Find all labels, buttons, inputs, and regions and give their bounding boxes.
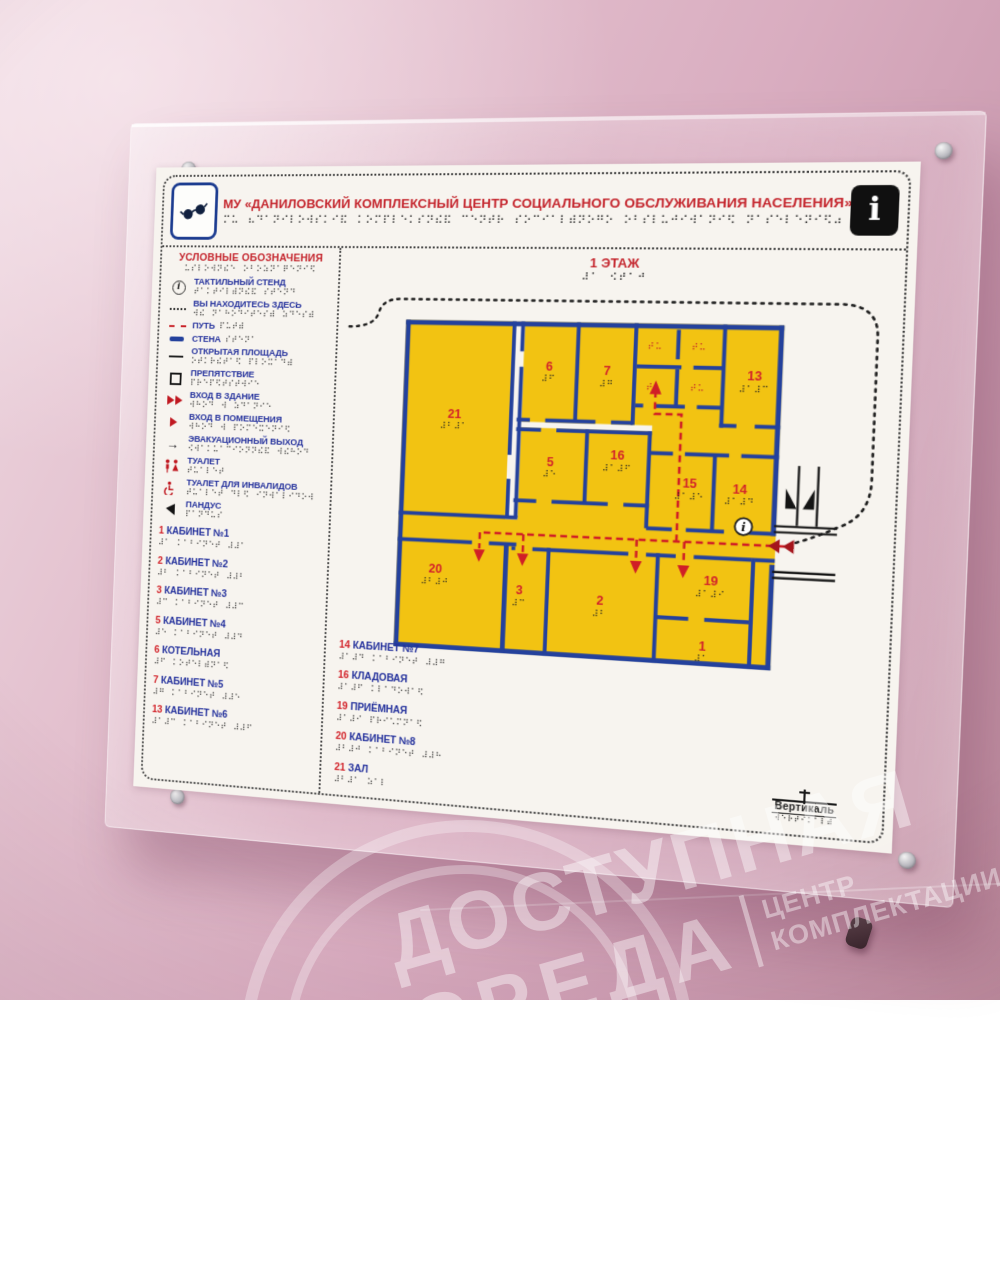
map-room-number: 3: [516, 583, 524, 598]
legend-item-braille: ⠕⠞⠅⠗⠮⠞⠁⠫⠀⠏⠇⠕⠭⠁⠙⠾: [191, 357, 294, 368]
open-area-icon: [165, 355, 186, 357]
legend-item: ВЫ НАХОДИТЕСЬ ЗДЕСЬ⠺⠮⠀⠝⠁⠓⠕⠙⠊⠞⠑⠎⠾⠀⠵⠙⠑⠎⠾: [167, 299, 332, 321]
accessible-toilet-icon: [160, 480, 182, 495]
map-room-list: 14 КАБИНЕТ №7⠼⠁⠼⠙⠀⠅⠁⠃⠊⠝⠑⠞⠀⠼⠼⠛16 КЛАДОВАЯ…: [334, 632, 533, 804]
sign-title: МУ «ДАНИЛОВСКИЙ КОМПЛЕКСНЫЙ ЦЕНТР СОЦИАЛ…: [223, 194, 845, 210]
legend-item: ПРЕПЯТСТВИЕ⠏⠗⠑⠏⠫⠞⠎⠞⠺⠊⠑: [164, 369, 329, 392]
map-room-number: 7: [603, 364, 611, 379]
tilted-wrapper: МУ «ДАНИЛОВСКИЙ КОМПЛЕКСНЫЙ ЦЕНТР СОЦИАЛ…: [104, 111, 986, 908]
map-room-number: 16: [610, 448, 625, 463]
map-room-braille: ⠼⠁⠼⠊: [695, 588, 726, 600]
obstacle-icon: [164, 372, 186, 385]
toilet-braille-mark: ⠞⠥: [690, 383, 706, 394]
tactile-sign-board: МУ «ДАНИЛОВСКИЙ КОМПЛЕКСНЫЙ ЦЕНТР СОЦИАЛ…: [133, 162, 921, 854]
map-room-braille: ⠼⠋: [541, 373, 556, 384]
map-room-braille: ⠼⠁⠼⠙: [724, 496, 755, 508]
room-list-item: 1 КАБИНЕТ №1⠼⠁⠀⠅⠁⠃⠊⠝⠑⠞⠀⠼⠼⠁: [158, 521, 323, 556]
legend-item-label: ПУТЬ: [192, 322, 215, 332]
legend-item: iТАКТИЛЬНЫЙ СТЕНД⠞⠁⠅⠞⠊⠇⠾⠝⠮⠯⠀⠎⠞⠑⠝⠙: [168, 278, 333, 299]
legend-items: iТАКТИЛЬНЫЙ СТЕНД⠞⠁⠅⠞⠊⠇⠾⠝⠮⠯⠀⠎⠞⠑⠝⠙ВЫ НАХО…: [159, 278, 332, 526]
path-icon: [166, 325, 187, 327]
map-room-braille: ⠼⠃: [592, 608, 607, 619]
map-room-braille: ⠼⠁⠼⠋: [602, 462, 632, 474]
standoff-bottom-right: [898, 851, 916, 869]
map-room-number: 15: [682, 476, 697, 491]
legend-item-braille: ⠺⠮⠀⠝⠁⠓⠕⠙⠊⠞⠑⠎⠾⠀⠵⠙⠑⠎⠾: [193, 310, 315, 321]
standoff-bottom-left: [170, 788, 185, 804]
legend-item-braille: ⠏⠗⠑⠏⠫⠞⠎⠞⠺⠊⠑: [190, 379, 260, 390]
room-braille: ⠼⠃⠼⠁⠀⠵⠁⠇: [334, 775, 527, 800]
map-room-number: 1: [698, 638, 706, 653]
map-room-number: 19: [703, 573, 718, 589]
sign-title-braille: ⠍⠥⠀⠦⠙⠁⠝⠊⠇⠕⠺⠎⠅⠊⠯⠀⠅⠕⠍⠏⠇⠑⠅⠎⠝⠮⠯⠀⠉⠑⠝⠞⠗⠀⠎⠕⠉⠊⠁⠇…: [222, 213, 844, 227]
legend-item-braille: ⠏⠁⠝⠙⠥⠎: [185, 510, 223, 521]
map-room-braille: ⠼⠃⠼⠁: [440, 420, 469, 431]
legend-item: →ЭВАКУАЦИОННЫЙ ВЫХОД⠪⠺⠁⠅⠥⠁⠉⠊⠕⠝⠝⠮⠯⠀⠺⠮⠓⠕⠙: [162, 434, 327, 459]
room-number: 20: [335, 730, 346, 743]
map-room-number: 5: [547, 454, 555, 469]
room-name: КАБИНЕТ №2: [163, 555, 228, 570]
room-name: КАБИНЕТ №4: [160, 615, 225, 630]
toilet-icon: [161, 458, 183, 473]
watermark-ring: [285, 865, 643, 1223]
room-name: ЗАЛ: [345, 762, 368, 776]
map-room-number: 2: [596, 593, 604, 608]
room-number: 13: [152, 703, 163, 715]
content-columns: УСЛОВНЫЕ ОБОЗНАЧЕНИЯ ⠥⠎⠇⠕⠺⠝⠮⠑⠀⠕⠃⠕⠵⠝⠁⠟⠑⠝⠊…: [142, 247, 906, 842]
room-name: КАБИНЕТ №7: [350, 639, 419, 655]
evacuation-exit-icon: →: [162, 438, 184, 450]
room-number: 14: [339, 638, 350, 650]
wall-icon: [166, 337, 188, 342]
map-room-braille: ⠼⠃⠼⠚: [421, 575, 450, 587]
map-room-braille: ⠼⠑: [542, 469, 557, 480]
information-icon: i: [850, 185, 900, 236]
map-room-number: 13: [747, 369, 763, 384]
legend-item: СТЕНА⠎⠞⠑⠝⠁: [166, 334, 331, 347]
tactile-stand-icon: i: [168, 280, 190, 294]
legend-room-list: 1 КАБИНЕТ №1⠼⠁⠀⠅⠁⠃⠊⠝⠑⠞⠀⠼⠼⠁2 КАБИНЕТ №2⠼⠃…: [151, 521, 323, 739]
building-floor: [394, 320, 785, 671]
manufacturer-logo: Вертикаль ⠺⠑⠗⠞⠊⠅⠁⠇⠾: [772, 787, 838, 828]
legend-item-braille: ⠞⠁⠅⠞⠊⠇⠾⠝⠮⠯⠀⠎⠞⠑⠝⠙: [194, 288, 297, 298]
toilet-braille-mark: ⠞⠥: [648, 340, 663, 351]
title-block: МУ «ДАНИЛОВСКИЙ КОМПЛЕКСНЫЙ ЦЕНТР СОЦИАЛ…: [217, 194, 851, 227]
title-bar: МУ «ДАНИЛОВСКИЙ КОМПЛЕКСНЫЙ ЦЕНТР СОЦИАЛ…: [162, 172, 909, 250]
map-room-braille: ⠼⠁⠼⠉: [739, 384, 770, 395]
map-room-number: 14: [732, 482, 748, 498]
legend-title-braille: ⠥⠎⠇⠕⠺⠝⠮⠑⠀⠕⠃⠕⠵⠝⠁⠟⠑⠝⠊⠫: [168, 264, 333, 275]
watermark-ring: [240, 820, 694, 1274]
legend-item-braille: ⠞⠥⠁⠇⠑⠞: [187, 467, 225, 478]
low-vision-glasses-icon: [170, 182, 219, 239]
watermark-line2: СРЕДА: [402, 900, 747, 1070]
stairs-triangle: [803, 489, 815, 509]
floor-plan-panel: 1 ЭТАЖ ⠼⠁⠀⠪⠞⠁⠚: [320, 248, 906, 842]
room-number: 19: [337, 700, 348, 712]
legend-item-braille: ⠎⠞⠑⠝⠁: [225, 336, 257, 346]
legend-item: ПУТЬ⠏⠥⠞⠾: [166, 321, 331, 334]
legend-item: ТУАЛЕТ⠞⠥⠁⠇⠑⠞: [161, 456, 326, 482]
dotted-frame: МУ «ДАНИЛОВСКИЙ КОМПЛЕКСНЫЙ ЦЕНТР СОЦИАЛ…: [141, 170, 912, 844]
map-room-braille: ⠼⠁⠼⠑: [674, 491, 705, 503]
toilet-braille-mark: ⠞⠥: [646, 382, 661, 393]
map-room-braille: ⠼⠛: [599, 379, 614, 390]
room-number: 21: [334, 761, 345, 774]
room-name: КАБИНЕТ №1: [164, 525, 229, 540]
you-are-here-marker: i: [734, 518, 752, 536]
map-room-number: 21: [448, 406, 462, 421]
map-room-number: 6: [546, 359, 554, 374]
legend-item-braille: ⠺⠓⠕⠙⠀⠺⠀⠵⠙⠁⠝⠊⠑: [189, 401, 272, 413]
room-braille: ⠼⠁⠼⠉⠀⠅⠁⠃⠊⠝⠑⠞⠀⠼⠼⠋: [151, 718, 315, 739]
glass-panel: МУ «ДАНИЛОВСКИЙ КОМПЛЕКСНЫЙ ЦЕНТР СОЦИАЛ…: [104, 111, 986, 908]
legend-title: УСЛОВНЫЕ ОБОЗНАЧЕНИЯ: [169, 252, 334, 265]
you-are-here-icon: [167, 308, 188, 310]
legend-panel: УСЛОВНЫЕ ОБОЗНАЧЕНИЯ ⠥⠎⠇⠕⠺⠝⠮⠑⠀⠕⠃⠕⠵⠝⠁⠟⠑⠝⠊…: [142, 247, 341, 793]
building-entrance-icon: [164, 395, 186, 405]
photo-scene: МУ «ДАНИЛОВСКИЙ КОМПЛЕКСНЫЙ ЦЕНТР СОЦИАЛ…: [0, 0, 1000, 1000]
room-number: 16: [338, 669, 349, 681]
stairs-triangle: [785, 489, 797, 509]
stairs-ramp: [772, 465, 840, 581]
legend-item-braille: ⠏⠥⠞⠾: [219, 323, 245, 333]
wall-anchor: [844, 915, 874, 950]
watermark-divider: [739, 895, 764, 968]
ramp-icon: [159, 503, 181, 515]
map-room-braille: ⠼⠉: [511, 597, 526, 608]
toilet-braille-mark: ⠞⠥: [691, 341, 707, 352]
legend-item: ВХОД В ПОМЕЩЕНИЯ⠺⠓⠕⠙⠀⠺⠀⠏⠕⠍⠑⠭⠑⠝⠊⠫: [163, 412, 328, 436]
glasses-glyph: [178, 199, 209, 224]
svg-text:i: i: [741, 520, 746, 534]
standoff-top-right: [934, 142, 953, 159]
map-room-number: 20: [428, 561, 442, 576]
room-name: ПРИЁМНАЯ: [348, 700, 408, 716]
room-entrance-icon: [163, 417, 185, 427]
legend-item-label: СТЕНА: [192, 334, 221, 345]
legend-item: ВХОД В ЗДАНИЕ⠺⠓⠕⠙⠀⠺⠀⠵⠙⠁⠝⠊⠑: [163, 390, 328, 414]
legend-item: ОТКРЫТАЯ ПЛОЩАДЬ⠕⠞⠅⠗⠮⠞⠁⠫⠀⠏⠇⠕⠭⠁⠙⠾: [165, 347, 330, 370]
map-room-braille: ⠼⠁: [694, 653, 710, 665]
